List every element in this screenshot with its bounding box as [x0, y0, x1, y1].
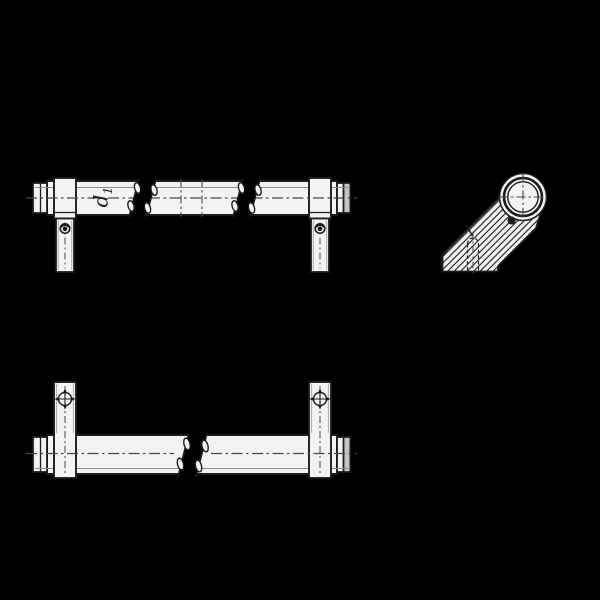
front-view: d1 [26, 178, 357, 272]
collar-clamp-screw [508, 217, 516, 225]
leg-left [56, 219, 74, 273]
bottom-view [26, 382, 357, 478]
set-screw-left [60, 224, 70, 234]
side-view [443, 173, 548, 277]
technical-drawing: d1 [0, 0, 600, 600]
end-cap-left-bottom [33, 437, 47, 472]
drawing-canvas: d1 [0, 0, 600, 600]
set-screw-right [315, 224, 325, 234]
end-cap-right-bottom [337, 437, 350, 472]
leg-right [311, 219, 329, 273]
